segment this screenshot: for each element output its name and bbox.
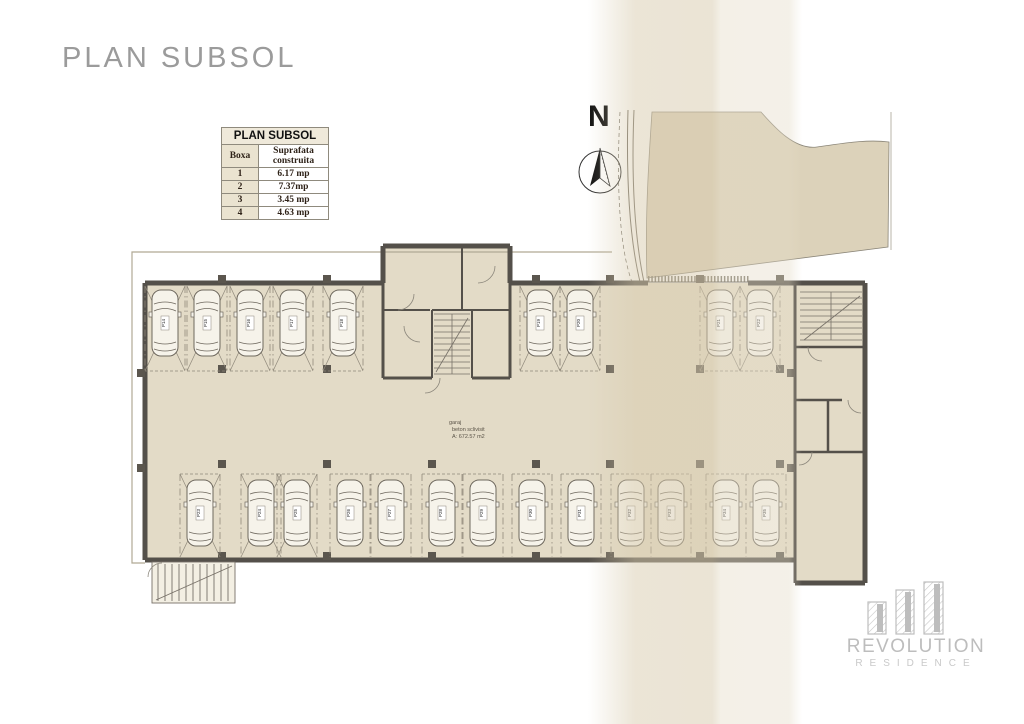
car: P20 <box>564 290 596 356</box>
car: P25 <box>281 480 313 546</box>
car-label: P35 <box>762 509 767 518</box>
car-label: P26 <box>346 509 351 518</box>
column <box>323 275 331 283</box>
car: P21 <box>704 290 736 356</box>
page: PLAN SUBSOL PLAN SUBSOL Boxa Suprafata c… <box>0 0 1024 724</box>
svg-text:garaj: garaj <box>449 420 461 426</box>
car-label: P23 <box>196 509 201 518</box>
car-label: P19 <box>536 319 541 328</box>
car: P35 <box>750 480 782 546</box>
column <box>696 460 704 468</box>
car-label: P31 <box>577 509 582 518</box>
car-label: P28 <box>438 509 443 518</box>
column <box>218 460 226 468</box>
brand-subname: RESIDENCE <box>836 658 996 669</box>
car: P34 <box>710 480 742 546</box>
column <box>606 275 614 283</box>
car: P23 <box>184 480 216 546</box>
svg-text:beton sclivisit: beton sclivisit <box>452 427 485 433</box>
road-curves <box>619 110 645 282</box>
car: P17 <box>277 290 309 356</box>
column <box>696 275 704 283</box>
column <box>428 460 436 468</box>
car: P15 <box>191 290 223 356</box>
column <box>606 460 614 468</box>
brand-logo: REVOLUTION RESIDENCE <box>836 580 996 680</box>
column <box>606 365 614 373</box>
car-label: P16 <box>246 319 251 328</box>
terrain-area <box>646 112 889 278</box>
car-label: P22 <box>756 319 761 328</box>
car-label: P17 <box>289 319 294 328</box>
car-label: P25 <box>293 509 298 518</box>
car-label: P15 <box>203 319 208 328</box>
column <box>776 275 784 283</box>
car-label: P33 <box>667 509 672 518</box>
car-label: P24 <box>257 509 262 518</box>
car: P14 <box>149 290 181 356</box>
car-label: P30 <box>528 509 533 518</box>
column <box>137 369 145 377</box>
car: P33 <box>655 480 687 546</box>
column <box>137 464 145 472</box>
car-label: P29 <box>479 509 484 518</box>
column <box>787 369 795 377</box>
car: P32 <box>615 480 647 546</box>
car: P26 <box>334 480 366 546</box>
car: P18 <box>327 290 359 356</box>
column <box>532 460 540 468</box>
column <box>323 460 331 468</box>
car-label: P27 <box>387 509 392 518</box>
svg-text:A: 672.57 m2: A: 672.57 m2 <box>452 434 485 440</box>
car-label: P20 <box>576 319 581 328</box>
car-label: P21 <box>716 319 721 328</box>
column <box>776 460 784 468</box>
car: P19 <box>524 290 556 356</box>
column <box>428 552 436 560</box>
column <box>532 275 540 283</box>
car: P29 <box>467 480 499 546</box>
exterior-stairs <box>152 562 235 603</box>
car: P16 <box>234 290 266 356</box>
buildings-icon <box>864 580 974 636</box>
car: P27 <box>375 480 407 546</box>
car-label: P34 <box>722 509 727 518</box>
car: P28 <box>426 480 458 546</box>
column <box>696 552 704 560</box>
car-label: P18 <box>339 319 344 328</box>
car: P30 <box>516 480 548 546</box>
column <box>776 552 784 560</box>
car: P24 <box>245 480 277 546</box>
brand-name: REVOLUTION <box>836 636 996 658</box>
column <box>218 275 226 283</box>
car-label: P14 <box>161 319 166 328</box>
car: P22 <box>744 290 776 356</box>
column <box>532 552 540 560</box>
column <box>606 552 614 560</box>
column <box>787 464 795 472</box>
car: P31 <box>565 480 597 546</box>
car-label: P32 <box>627 509 632 518</box>
